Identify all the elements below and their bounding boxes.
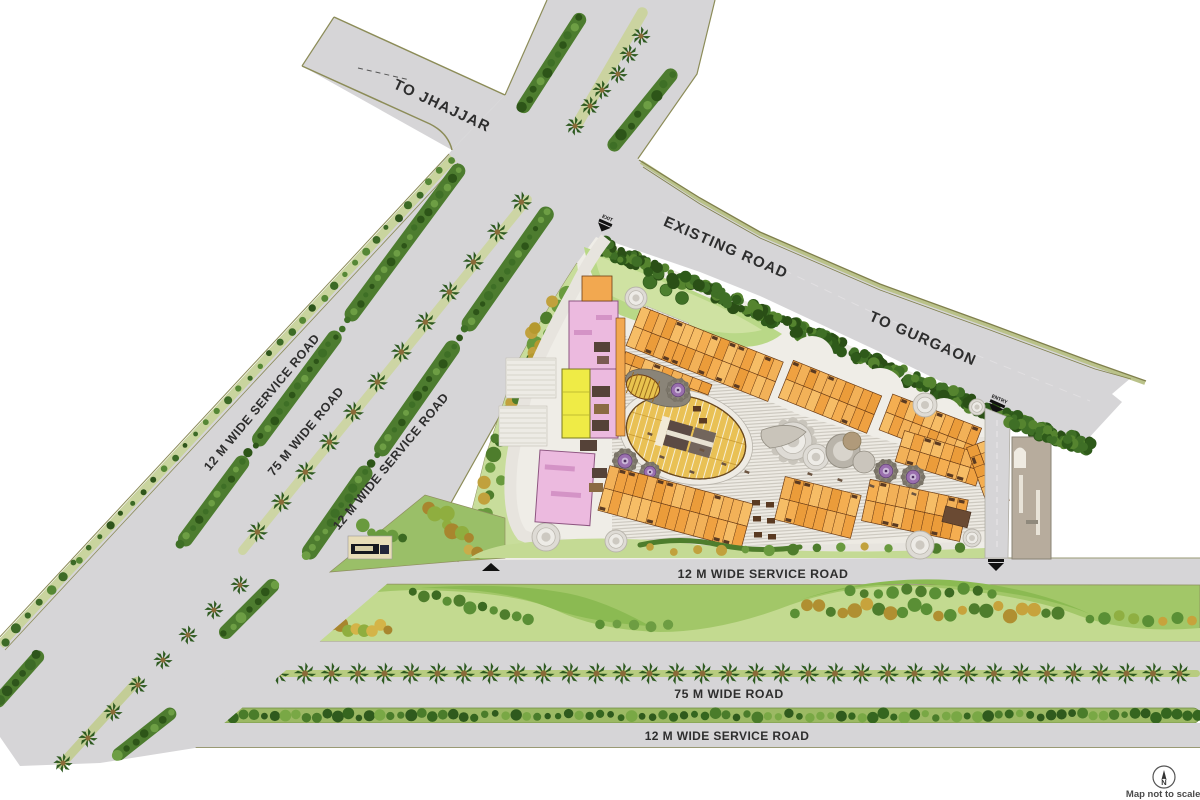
svg-text:75 M WIDE ROAD: 75 M WIDE ROAD [674,687,783,701]
svg-text:Map not to scale.: Map not to scale. [1126,789,1200,800]
svg-text:12 M WIDE SERVICE ROAD: 12 M WIDE SERVICE ROAD [678,567,849,581]
svg-text:N: N [1161,778,1166,787]
svg-text:12 M WIDE SERVICE ROAD: 12 M WIDE SERVICE ROAD [645,729,810,743]
